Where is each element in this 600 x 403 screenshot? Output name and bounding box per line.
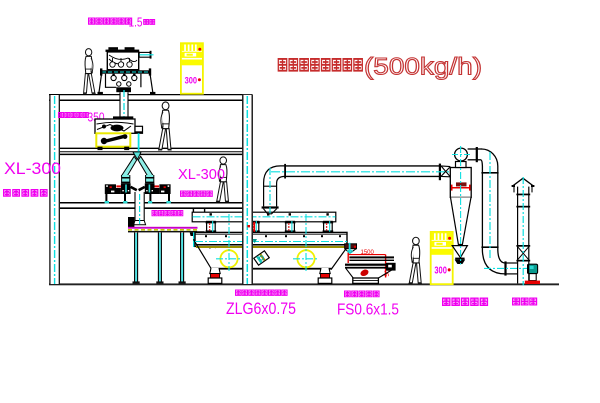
svg-text:XL-300: XL-300 bbox=[178, 166, 225, 183]
svg-text:1500: 1500 bbox=[361, 250, 375, 256]
svg-text:ZLG6x0.75: ZLG6x0.75 bbox=[226, 299, 296, 318]
svg-text:1.5: 1.5 bbox=[129, 15, 143, 30]
svg-text:FS0.6x1.5: FS0.6x1.5 bbox=[337, 302, 399, 319]
svg-text:XL-300: XL-300 bbox=[4, 160, 61, 178]
svg-text:(500kg/h): (500kg/h) bbox=[364, 54, 482, 81]
